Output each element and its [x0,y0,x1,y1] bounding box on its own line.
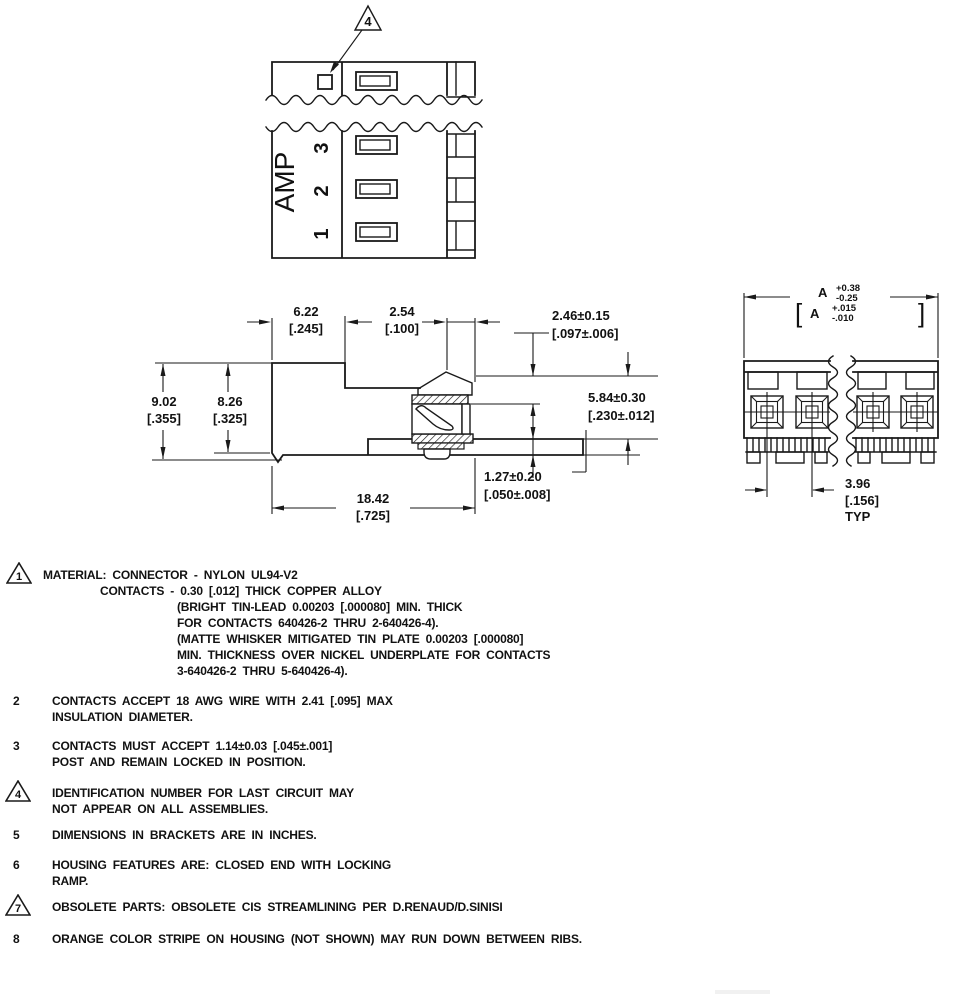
svg-text:4: 4 [15,789,22,801]
note-5-line-1: DIMENSIONS IN BRACKETS ARE IN INCHES. [52,828,317,842]
note-4-line-2: NOT APPEAR ON ALL ASSEMBLIES. [52,802,268,816]
notes-section: 1 MATERIAL: CONNECTOR - NYLON UL94-V2 CO… [0,0,967,1000]
engineering-drawing-sheet: 4 AMP 3 2 1 [0,0,967,1000]
note-8-number: 8 [13,932,20,946]
note-3-number: 3 [13,739,20,753]
note-2-line-2: INSULATION DIAMETER. [52,710,193,724]
note-1-line-5: (MATTE WHISKER MITIGATED TIN PLATE 0.002… [177,632,523,646]
note-1-line-6: MIN. THICKNESS OVER NICKEL UNDERPLATE FO… [177,648,550,662]
note-7-flag: 7 [5,894,31,916]
note-6-number: 6 [13,858,20,872]
svg-text:1: 1 [16,571,22,583]
note-4-flag: 4 [5,780,31,802]
svg-text:7: 7 [15,903,21,915]
note-1-line-4: FOR CONTACTS 640426-2 THRU 2-640426-4). [177,616,438,630]
note-3-line-2: POST AND REMAIN LOCKED IN POSITION. [52,755,306,769]
note-2-line-1: CONTACTS ACCEPT 18 AWG WIRE WITH 2.41 [.… [52,694,393,708]
note-7-line-1: OBSOLETE PARTS: OBSOLETE CIS STREAMLININ… [52,900,503,914]
note-5-number: 5 [13,828,20,842]
note-4-line-1: IDENTIFICATION NUMBER FOR LAST CIRCUIT M… [52,786,354,800]
note-3-line-1: CONTACTS MUST ACCEPT 1.14±0.03 [.045±.00… [52,739,332,753]
note-8-line-1: ORANGE COLOR STRIPE ON HOUSING (NOT SHOW… [52,932,582,946]
note-1-line-7: 3-640426-2 THRU 5-640426-4). [177,664,348,678]
note-1-flag: 1 [6,562,32,584]
note-6-line-1: HOUSING FEATURES ARE: CLOSED END WITH LO… [52,858,391,872]
note-1-line-1: MATERIAL: CONNECTOR - NYLON UL94-V2 [43,568,298,582]
scan-artifact [715,990,770,994]
note-6-line-2: RAMP. [52,874,88,888]
note-2-number: 2 [13,694,20,708]
note-1-line-3: (BRIGHT TIN-LEAD 0.00203 [.000080] MIN. … [177,600,462,614]
note-1-line-2: CONTACTS - 0.30 [.012] THICK COPPER ALLO… [100,584,382,598]
